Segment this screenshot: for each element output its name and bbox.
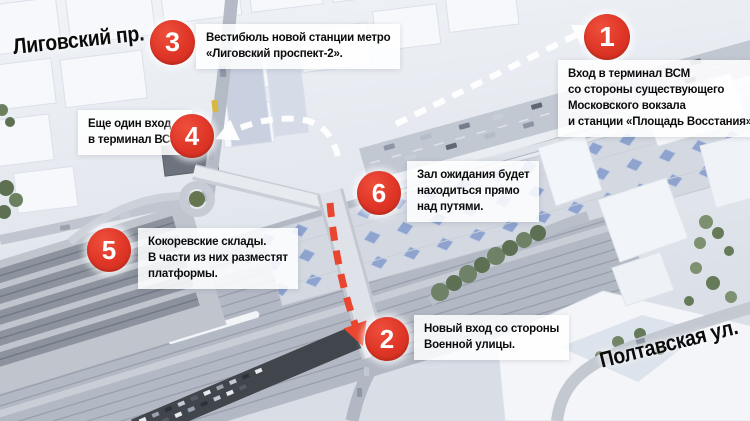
callout-badge-3: 3: [150, 20, 195, 65]
white-dashed-arrow-entrance-1: [396, 34, 578, 124]
red-dashed-route-arrow: [330, 203, 356, 327]
callout-badge-1: 1: [584, 14, 630, 60]
callout-note-6: Зал ожидания будет находиться прямо над …: [407, 161, 539, 222]
callout-note-5: Кокоревские склады. В части из них разме…: [138, 228, 298, 289]
infographic-canvas: Лиговский пр. Полтавская ул. 1 2 3 4 5 6…: [0, 0, 750, 421]
callout-badge-5: 5: [87, 228, 131, 272]
callout-note-3: Вестибюль новой станции метро «Лиговский…: [196, 24, 400, 69]
callout-badge-6: 6: [357, 171, 401, 215]
callout-badge-4: 4: [170, 114, 214, 158]
callout-note-1: Вход в терминал ВСМ со стороны существую…: [558, 60, 750, 137]
white-dashed-arrow-entrance-4: [233, 119, 338, 156]
callout-note-2: Новый вход со стороны Военной улицы.: [414, 315, 569, 360]
callout-badge-2: 2: [365, 317, 409, 361]
